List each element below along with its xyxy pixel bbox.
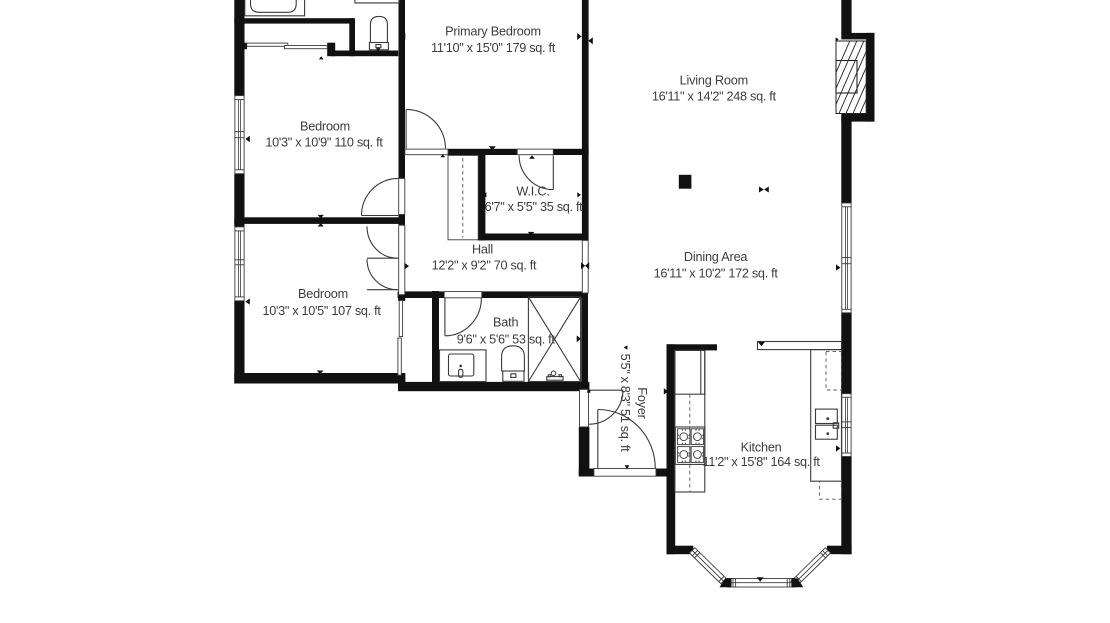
- svg-text:11'2" x 15'8" 164 sq. ft: 11'2" x 15'8" 164 sq. ft: [703, 455, 821, 469]
- svg-text:12'2" x 9'2" 70 sq. ft: 12'2" x 9'2" 70 sq. ft: [432, 258, 537, 272]
- svg-text:Foyer: Foyer: [635, 387, 649, 419]
- svg-text:6'7" x 5'5" 35 sq. ft: 6'7" x 5'5" 35 sq. ft: [485, 200, 584, 214]
- svg-text:Bedroom: Bedroom: [300, 120, 350, 134]
- svg-text:9'6" x 5'6" 53 sq. ft: 9'6" x 5'6" 53 sq. ft: [457, 332, 556, 346]
- svg-text:10'3" x 10'9" 110 sq. ft: 10'3" x 10'9" 110 sq. ft: [265, 136, 383, 150]
- svg-text:5'5" x 8'3" 51 sq. ft: 5'5" x 8'3" 51 sq. ft: [618, 354, 632, 453]
- svg-text:16'11" x 14'2" 248 sq. ft: 16'11" x 14'2" 248 sq. ft: [652, 90, 777, 104]
- svg-text:16'11" x 10'2" 172 sq. ft: 16'11" x 10'2" 172 sq. ft: [654, 266, 779, 280]
- svg-text:11'10" x 15'0" 179 sq. ft: 11'10" x 15'0" 179 sq. ft: [431, 41, 556, 55]
- svg-text:Hall: Hall: [472, 242, 493, 256]
- svg-text:Bath: Bath: [493, 315, 518, 329]
- svg-text:Living Room: Living Room: [680, 74, 748, 88]
- svg-text:Bedroom: Bedroom: [298, 287, 348, 301]
- svg-text:Kitchen: Kitchen: [741, 441, 782, 455]
- svg-text:Dining Area: Dining Area: [684, 250, 749, 264]
- svg-text:10'3" x 10'5" 107 sq. ft: 10'3" x 10'5" 107 sq. ft: [262, 304, 381, 318]
- svg-text:W.I.C.: W.I.C.: [516, 185, 549, 199]
- svg-text:Primary Bedroom: Primary Bedroom: [445, 25, 541, 39]
